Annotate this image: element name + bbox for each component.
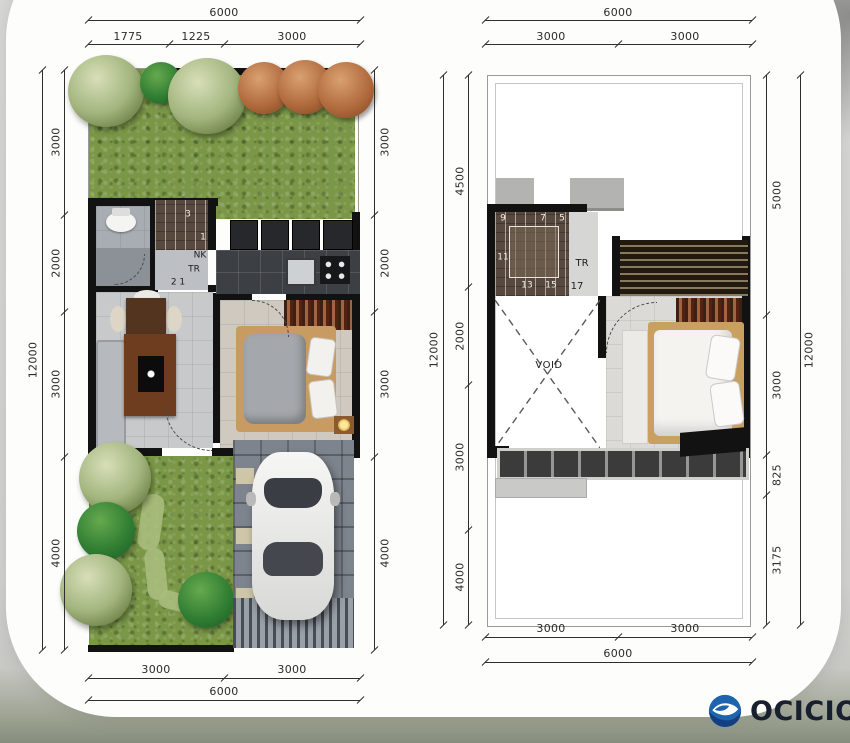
dim-label: 5000 — [772, 180, 783, 209]
dim-label: 3000 — [772, 370, 783, 399]
dim-label: 4000 — [455, 562, 466, 591]
dim-label: 3000 — [670, 31, 699, 42]
page-background: 3 1 NK TR 2 1 — [0, 0, 850, 743]
dim-label: 12000 — [429, 332, 440, 369]
brand-name: OCICIO — [750, 696, 850, 727]
dim-label: 12000 — [804, 332, 815, 369]
dim-label: 3000 — [670, 623, 699, 634]
dim-label: 4500 — [455, 166, 466, 195]
dim-line — [468, 75, 469, 625]
dim-label: 3000 — [536, 31, 565, 42]
dim-label: 6000 — [603, 648, 632, 659]
dim-label: 3000 — [536, 623, 565, 634]
brand-logo: OCICIO — [708, 694, 850, 728]
upper-floor-dimensions: 6000 3000 3000 12000 4500 2000 3000 4000… — [0, 0, 850, 743]
dim-label: 6000 — [603, 7, 632, 18]
dim-line — [443, 75, 444, 625]
dim-label: 825 — [772, 464, 783, 486]
dim-label: 2000 — [455, 321, 466, 350]
dim-line — [485, 662, 752, 663]
dim-line — [485, 20, 752, 21]
dim-label: 3000 — [455, 442, 466, 471]
dim-line — [800, 75, 801, 625]
dim-line — [766, 75, 767, 625]
dim-label: 3175 — [772, 545, 783, 574]
ocicio-logo-icon — [708, 694, 742, 728]
